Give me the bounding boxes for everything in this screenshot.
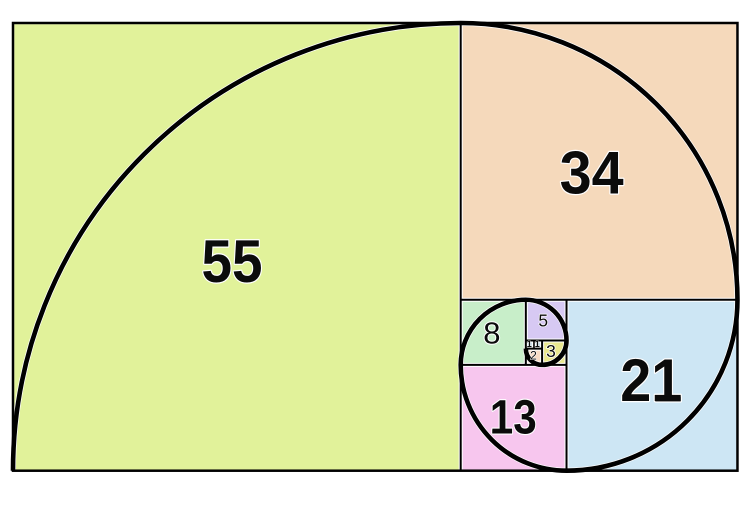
svg-text:8: 8 <box>483 316 500 351</box>
svg-text:2: 2 <box>530 348 537 362</box>
svg-text:1: 1 <box>535 339 540 349</box>
svg-text:34: 34 <box>560 140 625 207</box>
svg-text:13: 13 <box>490 391 537 444</box>
svg-text:1: 1 <box>527 339 532 349</box>
svg-text:55: 55 <box>202 228 263 295</box>
svg-text:21: 21 <box>620 347 682 414</box>
svg-text:3: 3 <box>546 341 556 361</box>
svg-text:5: 5 <box>538 310 548 330</box>
